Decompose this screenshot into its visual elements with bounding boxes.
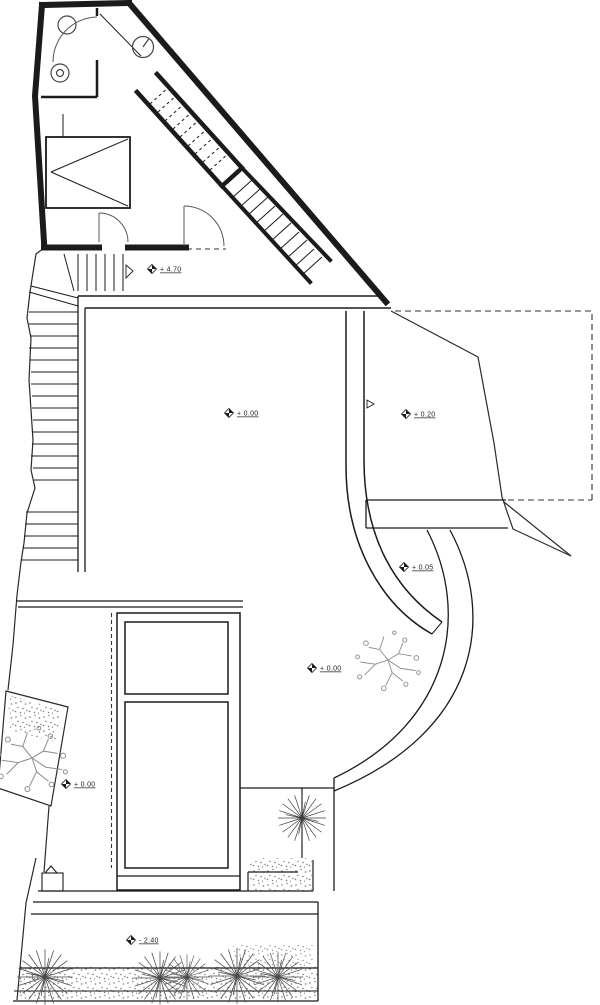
stair-lower-flight-treads bbox=[232, 180, 322, 275]
level-marker-west-planter: + 0.00 bbox=[62, 780, 96, 789]
level-marker-icon bbox=[148, 265, 157, 274]
level-label: + 0.00 bbox=[237, 411, 258, 418]
wardrobe-symbol bbox=[46, 137, 130, 208]
level-marker-entry: + 4.70 bbox=[148, 265, 182, 274]
palm-icon bbox=[278, 794, 326, 842]
curved-wall-inner bbox=[346, 311, 432, 634]
level-marker-icon bbox=[400, 563, 409, 572]
planting-fills bbox=[8, 695, 318, 999]
level-marker-icon bbox=[308, 664, 317, 673]
lower-court-structure bbox=[117, 613, 313, 891]
washbasin-icon bbox=[58, 16, 76, 34]
terrace-door-arc bbox=[184, 206, 224, 246]
dashed-lines bbox=[112, 249, 593, 868]
toilet-icon bbox=[51, 64, 69, 82]
bathroom-fixtures bbox=[51, 16, 154, 82]
east-opening-arrow bbox=[367, 400, 374, 408]
scatter-gravel bbox=[233, 945, 313, 966]
level-marker-icon bbox=[402, 410, 411, 419]
level-marker-upper-terrace: + 0.00 bbox=[225, 409, 259, 418]
level-label: - 2.40 bbox=[139, 938, 159, 945]
level-label: + 0.00 bbox=[74, 782, 95, 789]
main-diagonal-wall bbox=[129, 3, 386, 302]
east-boundary bbox=[391, 311, 571, 556]
level-label: + 0.05 bbox=[412, 565, 433, 572]
entry-steps bbox=[64, 254, 133, 291]
pool-upper-basin bbox=[125, 622, 228, 694]
entry-direction-arrow bbox=[126, 265, 133, 278]
door-swings bbox=[53, 17, 224, 246]
terrace-walls bbox=[16, 296, 508, 891]
bathroom-door-arc bbox=[53, 17, 97, 62]
hall-door-arc bbox=[99, 213, 128, 242]
level-marker-icon bbox=[127, 936, 136, 945]
shrub-planter bbox=[250, 858, 312, 891]
stair-upper-flight-hatch bbox=[150, 86, 230, 170]
level-label: + 0.00 bbox=[320, 666, 341, 673]
level-marker-east-terrace: + 0.20 bbox=[402, 410, 436, 419]
level-marker-curved-ramp: + 0.05 bbox=[400, 563, 434, 572]
dashed-plot-rectangle bbox=[395, 311, 592, 500]
floor-plan-drawing: + 4.70 + 0.00 + 0.20 + 0.05 + 0.00 + 0.0… bbox=[0, 0, 600, 1005]
building-walls bbox=[35, 3, 386, 302]
level-marker-icon bbox=[225, 409, 234, 418]
level-label: + 0.20 bbox=[414, 412, 435, 419]
level-marker-street: - 2.40 bbox=[127, 936, 159, 945]
level-label: + 4.70 bbox=[160, 267, 181, 274]
west-exterior-stairs bbox=[22, 286, 85, 572]
tree-icon bbox=[356, 631, 421, 691]
west-planter-shrubs bbox=[8, 695, 62, 742]
level-marker-icon bbox=[62, 780, 71, 789]
plan-sheet: + 4.70 + 0.00 + 0.20 + 0.05 + 0.00 + 0.0… bbox=[0, 0, 600, 1005]
utility-niche bbox=[42, 873, 63, 891]
vegetation bbox=[0, 631, 420, 1004]
level-marker-lower-terrace: + 0.00 bbox=[308, 664, 342, 673]
pool-lower-basin bbox=[125, 702, 228, 868]
